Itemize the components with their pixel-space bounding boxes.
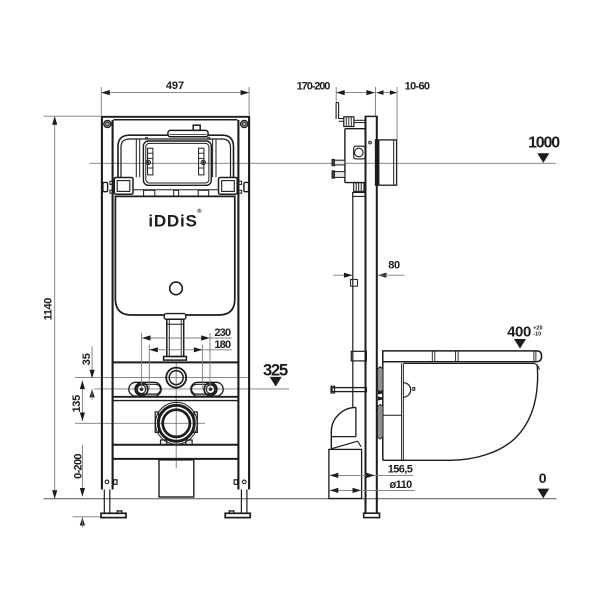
svg-text:®: ®	[197, 208, 202, 215]
svg-text:0-200: 0-200	[72, 454, 84, 479]
svg-text:325: 325	[263, 362, 288, 380]
svg-text:-10: -10	[533, 332, 541, 338]
svg-text:80: 80	[388, 259, 400, 271]
svg-text:230: 230	[214, 327, 231, 339]
svg-text:400: 400	[507, 324, 531, 341]
svg-text:156,5: 156,5	[388, 463, 413, 475]
svg-text:ø110: ø110	[390, 479, 413, 491]
svg-text:10-60: 10-60	[405, 80, 430, 92]
svg-text:1140: 1140	[43, 298, 55, 321]
svg-text:497: 497	[166, 80, 184, 92]
svg-text:170-200: 170-200	[297, 80, 331, 92]
svg-text:180: 180	[214, 339, 231, 351]
svg-text:135: 135	[71, 395, 83, 413]
svg-text:35: 35	[81, 353, 93, 365]
svg-text:1000: 1000	[528, 135, 560, 152]
svg-text:0: 0	[539, 470, 547, 486]
svg-text:iDDiS: iDDiS	[148, 212, 197, 231]
